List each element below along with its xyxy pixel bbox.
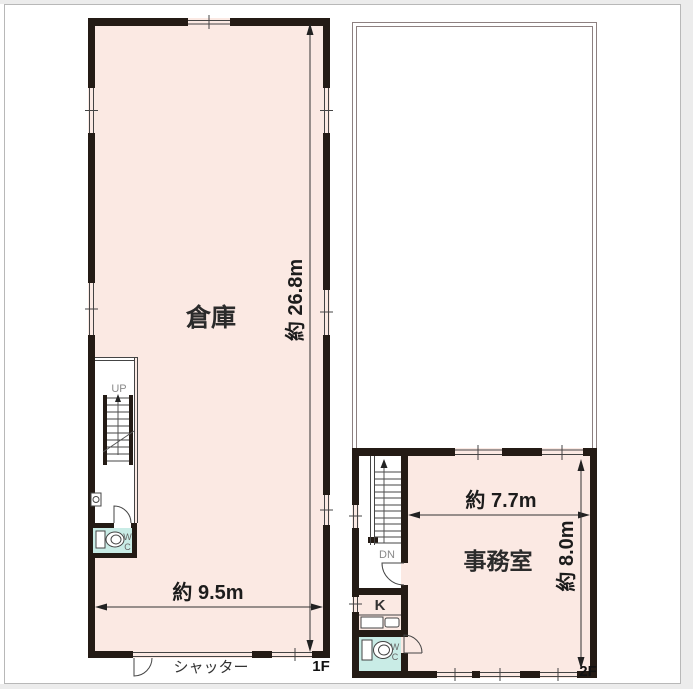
floor-1f-plan: UP W C 約 26.8m 約 9.5m <box>85 15 333 676</box>
warehouse-label: 倉庫 <box>185 303 236 332</box>
dim-width-label-1f: 約 9.5m <box>172 580 243 604</box>
dim-height-label-2f: 約 8.0m <box>554 520 578 591</box>
floor-label-2f: 2F <box>579 663 597 680</box>
floorplan-page: UP W C 約 26.8m 約 9.5m <box>0 0 693 689</box>
dim-height-label-1f: 約 26.8m <box>283 259 307 341</box>
edge-strip-bottom <box>0 684 693 689</box>
dim-width-label-2f: 約 7.7m <box>465 488 536 512</box>
office-label: 事務室 <box>464 548 533 574</box>
floor-label-1f: 1F <box>312 658 330 675</box>
edge-strip-right <box>681 0 693 689</box>
shutter-label: シャッター <box>173 659 248 676</box>
kitchen-sink <box>385 618 399 627</box>
wc-label-c-1f: C <box>124 542 131 552</box>
floorplan-drawing: UP W C 約 26.8m 約 9.5m <box>0 0 693 689</box>
toilet-tank-1f <box>96 531 105 548</box>
wc-label-w-1f: W <box>123 532 132 542</box>
stair-up-label: UP <box>111 383 126 395</box>
kitchen-label: K <box>375 597 386 614</box>
wc-label-c-2f: C <box>392 652 399 662</box>
stair-dn-label: DN <box>379 549 395 561</box>
kitchen-counter <box>361 617 383 628</box>
wc-fixtures-2f <box>362 640 393 660</box>
wc-label-w-2f: W <box>391 642 400 652</box>
toilet-tank-2f <box>362 640 372 660</box>
edge-strip-top <box>0 0 693 4</box>
stair-hall-2f <box>359 456 401 588</box>
